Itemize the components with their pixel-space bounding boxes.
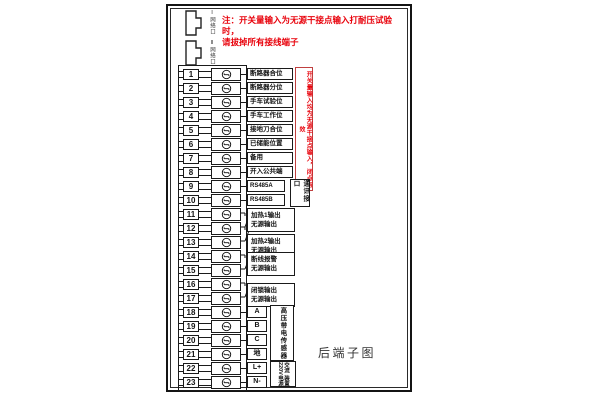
terminal-screw	[211, 222, 241, 235]
terminal-label: N-	[247, 376, 267, 388]
terminal-number: 13	[183, 237, 199, 248]
screw-terminal-icon	[221, 251, 232, 262]
screw-terminal-icon	[221, 335, 232, 346]
hv-sensor-label: 高压带电传感器	[270, 305, 294, 361]
dry-contact-note: 开关量输入均为无源干接点输入，闭点有效	[295, 67, 313, 191]
terminal-row: 2断路器分位	[179, 81, 293, 95]
screw-terminal-icon	[221, 307, 232, 318]
terminal-number: 2	[183, 83, 199, 94]
terminal-screw	[211, 208, 241, 221]
rear-terminal-diagram: Ⅰ网络口 Ⅱ网络口 注：开关量输入为无源干接点输入打耐压试验时， 请拔掉所有接线…	[0, 0, 600, 400]
screw-terminal-icon	[221, 377, 232, 388]
wire-duct	[199, 169, 211, 176]
screw-terminal-icon	[221, 153, 232, 164]
wire-duct	[199, 351, 211, 358]
terminal-number: 14	[183, 251, 199, 262]
terminal-screw	[211, 194, 241, 207]
terminal-screw	[211, 180, 241, 193]
terminal-number: 4	[183, 111, 199, 122]
output-name: 断线报警	[251, 255, 294, 264]
terminal-number: 1	[183, 69, 199, 80]
terminal-screw	[211, 306, 241, 319]
power-supply-line1: 交流220V	[277, 362, 289, 375]
terminal-number: 3	[183, 97, 199, 108]
output-name: 闭锁输出	[251, 286, 294, 295]
terminal-label: L+	[247, 362, 267, 374]
terminal-row: 1断路器合位	[179, 67, 293, 81]
screw-terminal-icon	[221, 167, 232, 178]
screw-terminal-icon	[221, 111, 232, 122]
screw-terminal-icon	[221, 293, 232, 304]
output-name: 加热1输出	[251, 211, 294, 220]
terminal-screw	[211, 68, 241, 81]
screw-terminal-icon	[221, 279, 232, 290]
terminal-screw	[211, 138, 241, 151]
terminal-number: 23	[183, 377, 199, 388]
terminal-screw	[211, 264, 241, 277]
terminal-label: RS485A	[247, 180, 285, 192]
wire-duct	[199, 239, 211, 246]
terminal-screw	[211, 292, 241, 305]
wire-duct	[199, 113, 211, 120]
diagram-caption: 后端子图	[318, 344, 376, 361]
terminal-number: 22	[183, 363, 199, 374]
screw-terminal-icon	[221, 195, 232, 206]
terminal-screw	[211, 82, 241, 95]
terminal-number: 19	[183, 321, 199, 332]
terminal-screw	[211, 110, 241, 123]
terminal-number: 16	[183, 279, 199, 290]
output-label-lockout: 闭锁输出 无源输出	[247, 283, 295, 307]
terminal-row: 7备用	[179, 151, 293, 165]
terminal-number: 5	[183, 125, 199, 136]
output-label-heater1: 加热1输出 无源输出	[247, 208, 295, 232]
wire-duct	[199, 155, 211, 162]
terminal-label: 地	[247, 348, 267, 360]
terminal-screw	[211, 166, 241, 179]
terminal-row: 4手车工作位	[179, 109, 293, 123]
terminal-row: 9RS485A	[179, 179, 293, 193]
warning-note-line1: 注：开关量输入为无源干接点输入打耐压试验时，	[222, 15, 408, 37]
terminal-label: RS485B	[247, 194, 285, 206]
screw-terminal-icon	[221, 223, 232, 234]
terminal-label: 备用	[247, 152, 293, 164]
terminal-number: 21	[183, 349, 199, 360]
terminal-screw	[211, 348, 241, 361]
terminal-screw	[211, 376, 241, 389]
output-type: 无源输出	[251, 220, 294, 229]
output-type: 无源输出	[251, 264, 294, 273]
terminal-number: 11	[183, 209, 199, 220]
screw-terminal-icon	[221, 139, 232, 150]
terminal-row: 10RS485B	[179, 193, 293, 207]
wire-duct	[199, 71, 211, 78]
screw-terminal-icon	[221, 83, 232, 94]
screw-terminal-icon	[221, 97, 232, 108]
output-name: 加热2输出	[251, 237, 294, 246]
screw-terminal-icon	[221, 363, 232, 374]
terminal-screw	[211, 250, 241, 263]
terminal-number: 6	[183, 139, 199, 150]
terminal-number: 10	[183, 195, 199, 206]
terminal-screw	[211, 334, 241, 347]
diagram-frame: Ⅰ网络口 Ⅱ网络口 注：开关量输入为无源干接点输入打耐压试验时， 请拔掉所有接线…	[166, 4, 412, 392]
wire-duct	[199, 379, 211, 386]
wire-duct	[199, 141, 211, 148]
screw-terminal-icon	[221, 321, 232, 332]
wire-duct	[199, 127, 211, 134]
network-port-1-label: Ⅰ网络口	[206, 10, 214, 38]
screw-terminal-icon	[221, 69, 232, 80]
terminal-row: 8开入公共端	[179, 165, 293, 179]
terminal-number: 9	[183, 181, 199, 192]
network-port-icon	[185, 10, 203, 36]
terminal-screw	[211, 96, 241, 109]
terminal-number: 18	[183, 307, 199, 318]
wire-duct	[199, 267, 211, 274]
output-label-line-break-alarm: 断线报警 无源输出	[247, 252, 295, 276]
terminal-label: A	[247, 306, 267, 318]
wire-duct	[199, 211, 211, 218]
network-port-icon	[185, 40, 203, 66]
terminal-label: 接地刀合位	[247, 124, 293, 136]
power-supply-line2: 装置电源	[277, 375, 289, 386]
terminal-label: 手车工作位	[247, 110, 293, 122]
terminal-number: 17	[183, 293, 199, 304]
terminal-label: 手车试验位	[247, 96, 293, 108]
wire-duct	[199, 281, 211, 288]
terminal-label: C	[247, 334, 267, 346]
terminal-number: 7	[183, 153, 199, 164]
output-type: 无源输出	[251, 295, 294, 304]
warning-note-line2: 请拔掉所有接线端子	[222, 37, 408, 48]
terminal-screw	[211, 124, 241, 137]
network-port-2-label: Ⅱ网络口	[206, 40, 214, 68]
wire-duct	[199, 197, 211, 204]
terminal-number: 20	[183, 335, 199, 346]
terminal-row: 5接地刀合位	[179, 123, 293, 137]
terminal-screw	[211, 278, 241, 291]
screw-terminal-icon	[221, 125, 232, 136]
screw-terminal-icon	[221, 265, 232, 276]
wire-duct	[199, 85, 211, 92]
terminal-screw	[211, 236, 241, 249]
wire-duct	[199, 295, 211, 302]
terminal-label: 已储能位置	[247, 138, 293, 150]
terminal-number: 15	[183, 265, 199, 276]
screw-terminal-icon	[221, 237, 232, 248]
terminal-number: 12	[183, 223, 199, 234]
power-supply-label: 交流220V 装置电源	[270, 361, 296, 387]
terminal-screw	[211, 152, 241, 165]
screw-terminal-icon	[221, 181, 232, 192]
wire-duct	[199, 365, 211, 372]
wire-duct	[199, 99, 211, 106]
screw-terminal-icon	[221, 209, 232, 220]
terminal-number: 8	[183, 167, 199, 178]
terminal-label: 断路器合位	[247, 68, 293, 80]
terminal-screw	[211, 362, 241, 375]
terminal-label: 断路器分位	[247, 82, 293, 94]
wire-duct	[199, 337, 211, 344]
terminal-label: B	[247, 320, 267, 332]
screw-terminal-icon	[221, 349, 232, 360]
wire-duct	[199, 309, 211, 316]
wire-duct	[199, 253, 211, 260]
terminal-row: 6已储能位置	[179, 137, 293, 151]
comm-port-label: 通讯接口	[290, 179, 310, 207]
warning-note: 注：开关量输入为无源干接点输入打耐压试验时， 请拔掉所有接线端子	[222, 15, 408, 48]
wire-duct	[199, 183, 211, 190]
terminal-row: 3手车试验位	[179, 95, 293, 109]
terminal-label: 开入公共端	[247, 166, 293, 178]
wire-duct	[199, 323, 211, 330]
wire-duct	[199, 225, 211, 232]
terminal-screw	[211, 320, 241, 333]
